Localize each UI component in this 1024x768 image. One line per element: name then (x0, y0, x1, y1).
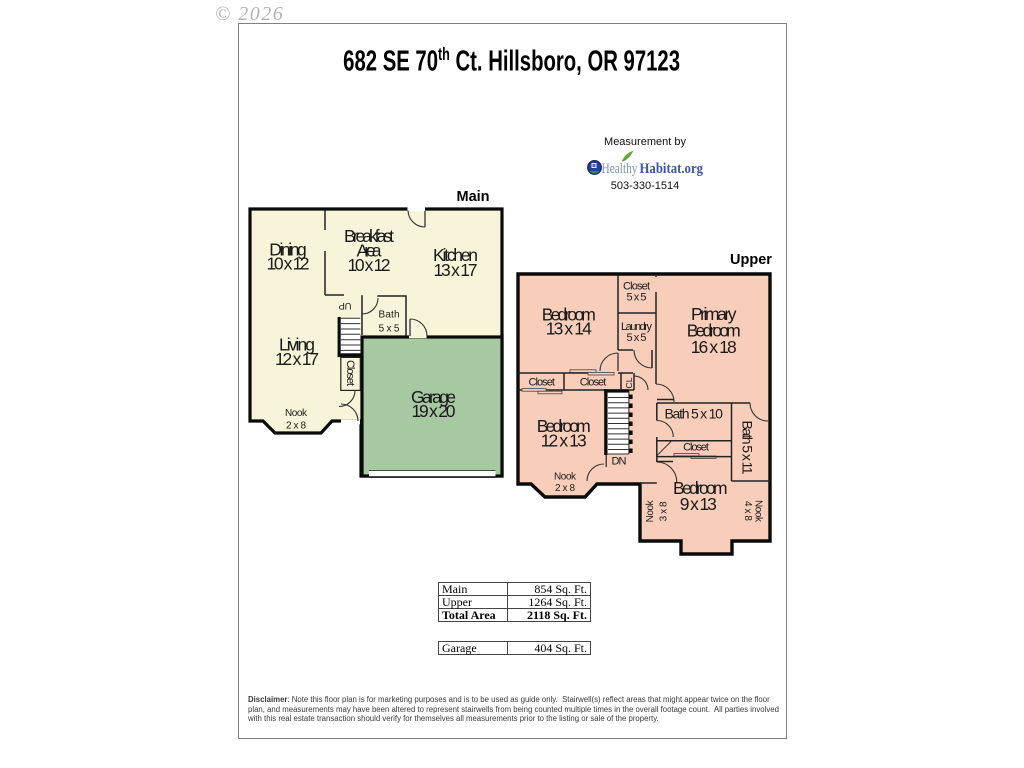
svg-text:16 x 18: 16 x 18 (691, 337, 737, 357)
svg-text:19 x 20: 19 x 20 (412, 401, 456, 421)
svg-text:Bath 5 x 11: Bath 5 x 11 (740, 421, 756, 475)
svg-text:4 x 8: 4 x 8 (742, 501, 753, 521)
svg-text:CL: CL (624, 377, 634, 388)
svg-text:3 x 8: 3 x 8 (659, 501, 670, 521)
svg-text:Bath: Bath (379, 310, 400, 321)
svg-text:5 x 5: 5 x 5 (379, 324, 400, 335)
svg-text:Closet: Closet (683, 441, 709, 453)
svg-text:5 x 5: 5 x 5 (627, 332, 647, 344)
svg-text:Closet: Closet (580, 377, 607, 389)
svg-text:13 x 14: 13 x 14 (546, 318, 592, 338)
svg-text:9 x 13: 9 x 13 (680, 494, 717, 514)
svg-text:Nook: Nook (285, 408, 308, 419)
svg-text:Habitat.org: Habitat.org (640, 161, 704, 177)
svg-text:Nook: Nook (554, 471, 577, 482)
svg-text:2 x 8: 2 x 8 (555, 483, 575, 494)
svg-text:12 x 13: 12 x 13 (541, 431, 587, 451)
svg-text:Nook: Nook (752, 500, 763, 523)
svg-text:Bath 5 x 10: Bath 5 x 10 (664, 406, 723, 422)
svg-text:12 x 17: 12 x 17 (275, 349, 319, 369)
svg-text:5 x 5: 5 x 5 (627, 291, 647, 303)
svg-text:10 x 12: 10 x 12 (267, 254, 310, 274)
svg-text:13 x 17: 13 x 17 (434, 260, 478, 280)
svg-text:10 x 12: 10 x 12 (348, 255, 391, 275)
svg-text:2 x 8: 2 x 8 (286, 421, 306, 432)
svg-text:Closet: Closet (344, 360, 356, 386)
svg-text:Closet: Closet (528, 377, 555, 389)
svg-text:DN: DN (612, 456, 627, 468)
svg-text:UP: UP (339, 300, 352, 311)
svg-text:Healthy: Healthy (602, 161, 639, 177)
svg-text:Nook: Nook (645, 499, 656, 522)
